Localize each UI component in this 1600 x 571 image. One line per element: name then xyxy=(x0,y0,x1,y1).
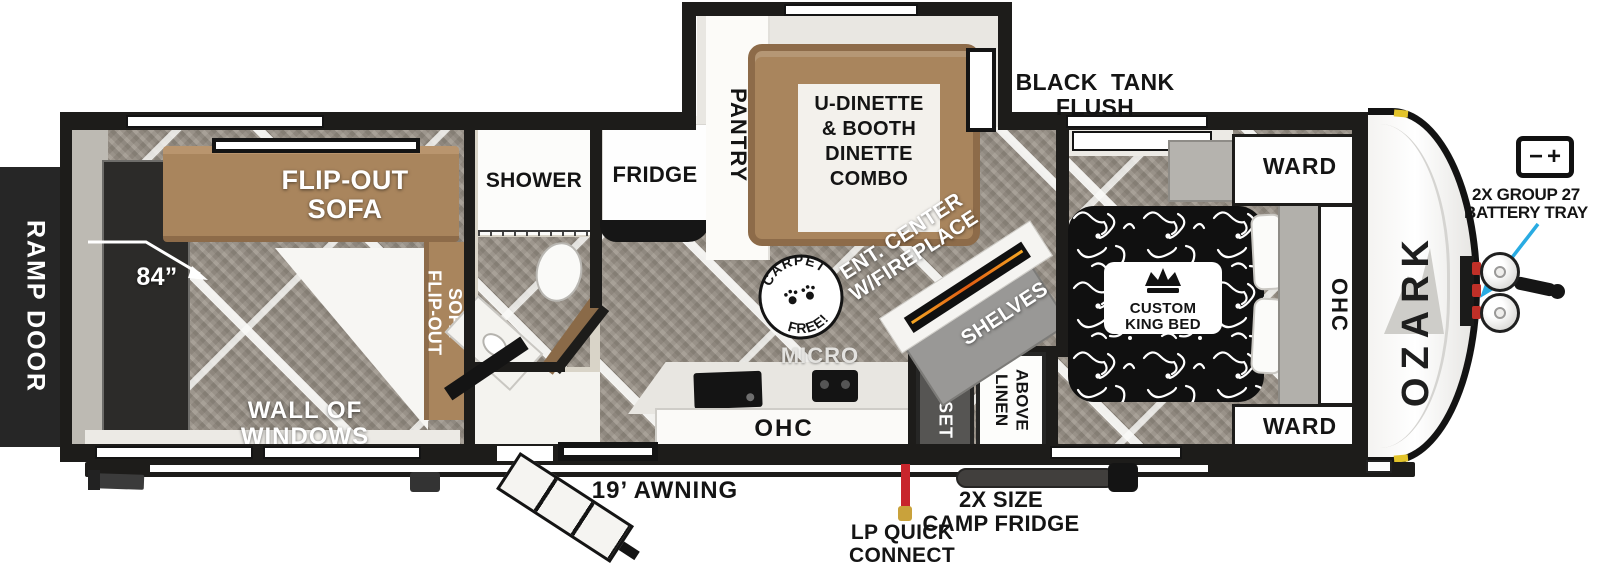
dinette-label: U-DINETTE & BOOTH DINETTE COMBO xyxy=(798,92,940,192)
ramp-door-label: RAMP DOOR xyxy=(22,220,49,393)
black-tank-flush-label: BLACK TANK FLUSH xyxy=(995,70,1195,120)
slide-side-window xyxy=(966,48,996,132)
closet-wall-right xyxy=(1046,346,1058,450)
shower-label: SHOWER xyxy=(473,170,595,193)
flip-out-sofa-side-label: FLIP-OUT SOFA xyxy=(422,238,466,388)
kitchen-bottom-window-glass xyxy=(564,448,652,455)
stabilizer-jack-left-foot xyxy=(88,470,100,490)
garage-partition-wall xyxy=(464,122,475,452)
garage-bottom-window-2 xyxy=(263,446,421,459)
propane-tank-1-valve xyxy=(1494,266,1506,278)
bed-headboard xyxy=(1278,196,1320,408)
kitchen-bottom-window xyxy=(558,442,658,461)
garage-interior-window xyxy=(212,138,420,153)
bedroom-ohc-label: OHC xyxy=(1327,278,1351,333)
brand-label: OZARK xyxy=(1396,232,1437,407)
battery-plus: + xyxy=(1547,143,1561,171)
body-left-wall xyxy=(60,112,72,462)
sink-faucet xyxy=(841,380,850,389)
stabilizer-jack-mid xyxy=(410,472,440,492)
front-jack-foot xyxy=(1366,460,1392,473)
stabilizer-jack-left xyxy=(94,473,144,490)
sink-drain xyxy=(820,380,829,389)
ward-top-label: WARD xyxy=(1240,154,1360,179)
ward-bottom-label: WARD xyxy=(1240,414,1360,439)
garage-top-window xyxy=(126,115,324,128)
jack-handle-knob xyxy=(1550,284,1565,299)
kitchen-counter-top xyxy=(628,362,918,414)
crown-icon xyxy=(1141,266,1185,296)
cooktop-knob xyxy=(746,393,754,401)
floorplan-canvas: RAMP DOOR FLIP-OUT SOFA FLIP-OUT SOFA 84… xyxy=(0,0,1600,571)
dimension-84-label: 84” xyxy=(126,264,188,291)
bed-label-card: CUSTOM KING BED xyxy=(1104,262,1222,334)
fridge-counter xyxy=(600,220,710,242)
bed-label: CUSTOM KING BED xyxy=(1104,301,1222,333)
awning-label: 19’ AWNING xyxy=(560,478,770,504)
cooktop xyxy=(693,371,762,409)
propane-tank-2 xyxy=(1480,293,1520,333)
battery-icon: −+ xyxy=(1516,136,1574,178)
wall-of-windows-label: WALL OF WINDOWS xyxy=(185,398,425,450)
kitchen-sink xyxy=(812,370,858,402)
slide-top-window xyxy=(784,4,918,16)
kitchen-ohc-label: OHC xyxy=(655,416,913,442)
battery-minus: − xyxy=(1529,143,1543,171)
flip-out-sofa-top-label: FLIP-OUT SOFA xyxy=(245,166,445,224)
brand-wrap: OZARK xyxy=(1390,198,1444,442)
slide-left-wall xyxy=(682,2,696,130)
pantry-label: PANTRY xyxy=(726,88,750,182)
shower-curtain-rod xyxy=(478,230,590,236)
camp-fridge-tray xyxy=(956,468,1116,488)
propane-tank-2-valve xyxy=(1494,307,1506,319)
garage-bottom-window-1 xyxy=(95,446,253,459)
propane-tank-1 xyxy=(1480,252,1520,292)
bedroom-bottom-window xyxy=(1050,446,1182,459)
fridge-label: FRIDGE xyxy=(602,163,708,187)
body-right-wall xyxy=(1352,112,1368,462)
tank-strap-2 xyxy=(1472,284,1481,297)
bathroom-right-wall xyxy=(590,122,602,308)
camp-fridge-label: 2X SIZE CAMP FRIDGE xyxy=(876,488,1126,536)
clearance-light-top xyxy=(1394,109,1409,117)
bedroom-overhead-cabinet xyxy=(1168,140,1236,202)
